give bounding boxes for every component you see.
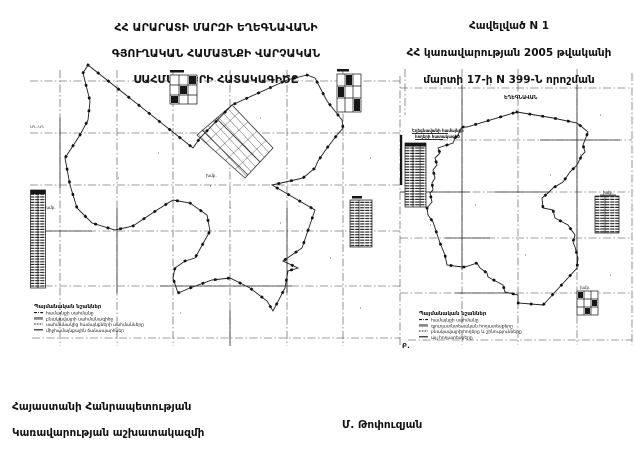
legend-item-r2: գյուղատնտեսական հողատեսքերը: [431, 323, 513, 329]
boundary-point-markers-right: [427, 112, 588, 305]
coordinate-table-left: [31, 190, 46, 288]
legend-item-r3: բնակավայրի հողերը և շինությունները: [431, 329, 522, 335]
legend-item-r1: համայնքի սահմանը: [431, 318, 479, 324]
scan-noise-right: [430, 85, 611, 275]
left-map-sheet: խմբ. խմբ. ՍՂ..ԿՂ Պայմանական նշաններ համա…: [30, 58, 402, 350]
sheet-heading: Եղեգնավանի համայնքի հողերի հատակագիծ: [412, 128, 464, 139]
legend-title-right: Պայմանական նշաններ: [419, 311, 487, 317]
legend-item-r4: այլ հողատեսքերը: [431, 335, 473, 341]
group-label-b: խմբ.: [206, 173, 217, 178]
data-table-right-side: խմբ.: [595, 190, 619, 233]
table-caption: խմբ.: [603, 190, 613, 195]
community-name-label: ԵՂԵԳՆԱՎԱՆ: [504, 95, 538, 101]
heading-line-2: հողերի հատակագիծ: [415, 134, 460, 139]
index-stamp-upper-right: [337, 69, 361, 112]
scanned-map-document: ՀՀ ԱՐԱՐԱՏԻ ՄԱՐԶԻ ԵՂԵԳՆԱՎԱՆԻ ԳՅՈՒՂԱԿԱՆ ՀԱ…: [0, 0, 634, 451]
community-boundary-right: [427, 112, 588, 305]
legend-item-1: համայնքի սահմանը: [46, 311, 94, 317]
stamp-caption: խմբ.: [580, 285, 590, 290]
bottom-right-stamp: խմբ.: [577, 285, 598, 315]
right-map-legend: Պայմանական նշաններ համայնքի սահմանը գյու…: [419, 311, 522, 341]
footer-line-2: Կառավարության աշխատակազմի: [12, 427, 204, 440]
signatory-block: Հայաստանի Հանրապետության Կառավարության ա…: [12, 388, 204, 451]
corner-mark: Բ.: [402, 342, 410, 350]
title-line-1: ՀՀ ԱՐԱՐԱՏԻ ՄԱՐԶԻ ԵՂԵԳՆԱՎԱՆԻ: [84, 21, 348, 34]
legend-item-4: միջհամայնքային ճանապարհներ: [46, 328, 124, 334]
right-map-sheet: ԵՂԵԳՆԱՎԱՆ Եղեգնավանի համայնքի հողերի հատ…: [400, 55, 634, 351]
legend-item-3: սահմանակից համայնքների սահմանները: [46, 322, 144, 328]
left-map-legend: Պայմանական նշաններ համայնքի սահմանը բնակ…: [34, 304, 144, 334]
settlement-parcel-grid: [197, 105, 273, 178]
coordinate-table-right-map: [405, 143, 426, 207]
grid-edge-label: ՍՂ..ԿՂ: [30, 124, 44, 129]
heading-line-1: Եղեգնավանի համայնքի: [412, 128, 464, 133]
legend-item-2: բնակավայրի սահմանագիծը: [46, 316, 113, 322]
boundary-point-markers: [65, 65, 343, 311]
index-stamp-upper: [170, 70, 197, 104]
signatory-name: Մ. Թոփուզյան: [342, 419, 422, 431]
footer-line-1: Հայաստանի Հանրապետության: [12, 401, 204, 414]
annex-line-1: Հավելված N 1: [388, 20, 630, 34]
community-boundary: [65, 65, 343, 311]
group-label-a: խմբ.: [45, 205, 56, 210]
legend-title: Պայմանական նշաններ: [34, 304, 102, 310]
data-table-right: [350, 196, 372, 247]
